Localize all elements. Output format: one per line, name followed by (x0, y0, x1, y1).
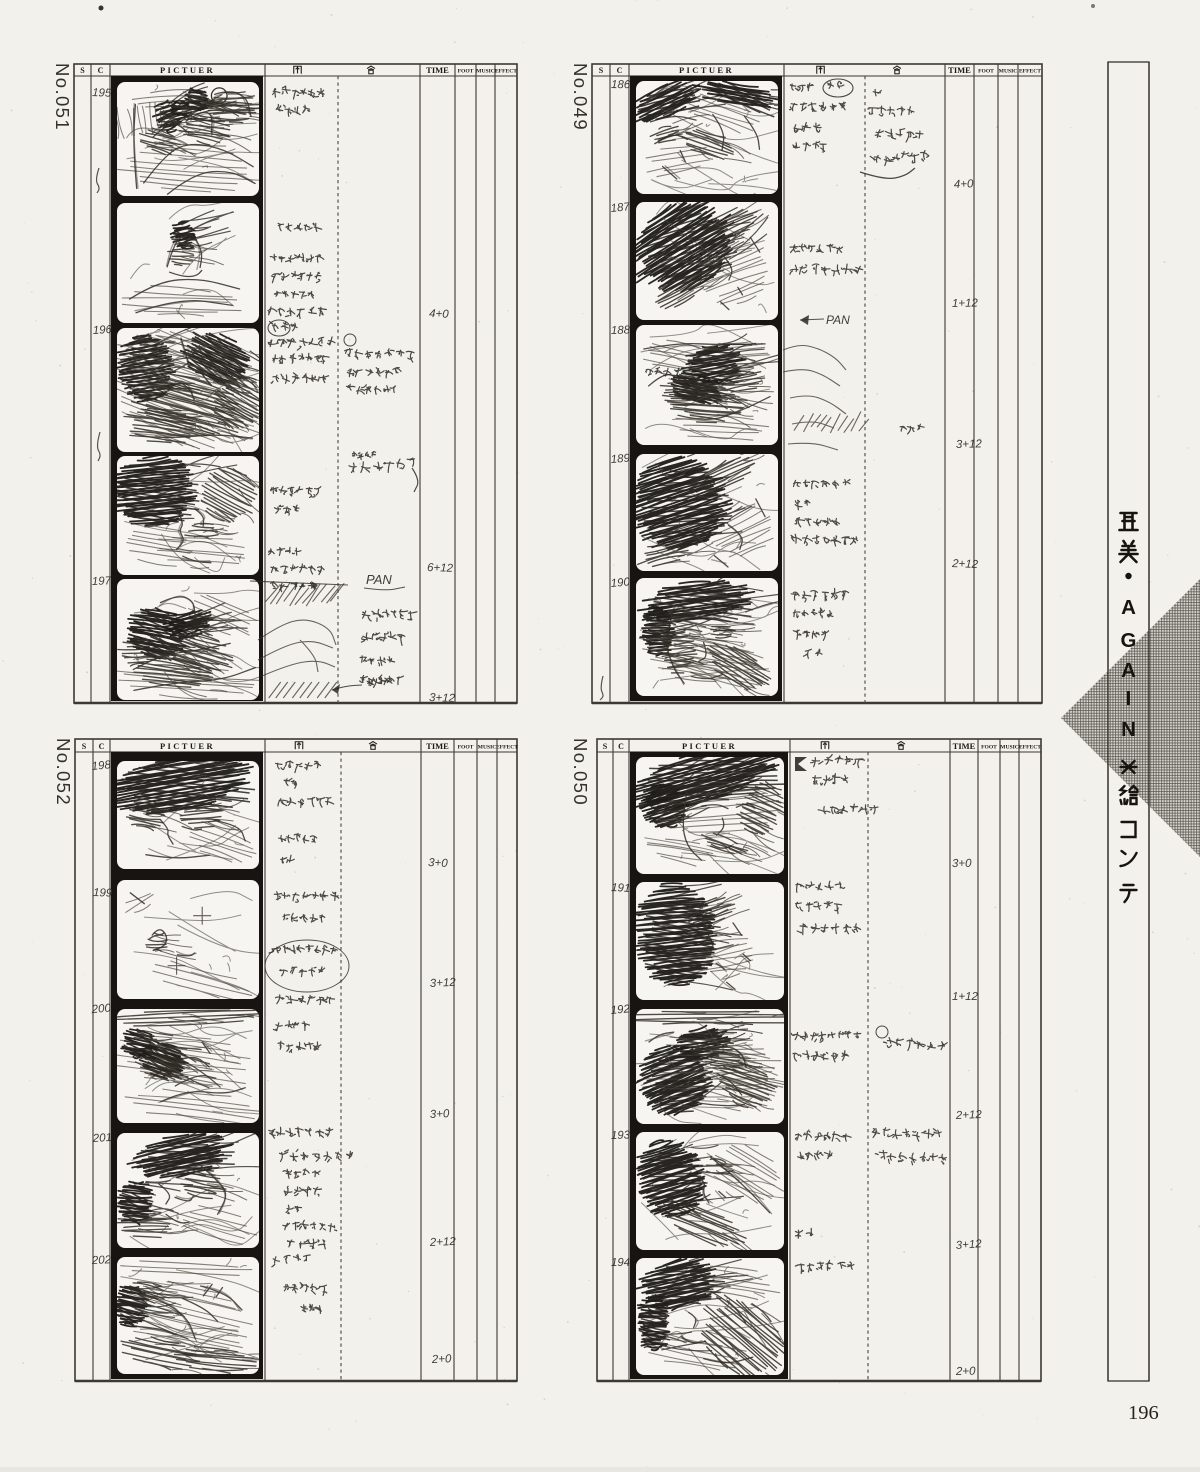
svg-text:191: 191 (611, 882, 631, 895)
svg-text:PICTUER: PICTUER (160, 65, 215, 75)
svg-text:188: 188 (611, 325, 631, 337)
svg-text:6+12: 6+12 (427, 562, 454, 575)
svg-text:No.052: No.052 (53, 738, 74, 806)
svg-text:3+12: 3+12 (956, 438, 983, 451)
svg-text:MUSIC: MUSIC (999, 69, 1018, 75)
svg-text:197: 197 (92, 575, 112, 588)
svg-text:202: 202 (91, 1254, 112, 1267)
svg-text:4+0: 4+0 (954, 178, 975, 191)
svg-text:201: 201 (91, 1132, 112, 1145)
svg-text:No.051: No.051 (52, 63, 73, 131)
svg-text:FOOT: FOOT (981, 745, 997, 751)
svg-text:PICTUER: PICTUER (679, 65, 734, 75)
svg-text:3+0: 3+0 (428, 857, 449, 870)
svg-text:187: 187 (610, 201, 631, 215)
svg-text:PICTUER: PICTUER (682, 741, 737, 751)
svg-text:No.049: No.049 (570, 63, 591, 131)
svg-text:TIME: TIME (953, 741, 976, 751)
svg-text:1+12: 1+12 (952, 991, 979, 1003)
svg-text:3+12: 3+12 (955, 1238, 982, 1252)
svg-text:S: S (599, 66, 604, 75)
svg-text:196: 196 (1128, 1402, 1159, 1424)
svg-text:3+0: 3+0 (430, 1108, 451, 1121)
svg-text:S: S (80, 66, 85, 75)
svg-text:3+12: 3+12 (430, 977, 457, 990)
svg-text:198: 198 (91, 759, 112, 773)
svg-text:189: 189 (610, 453, 631, 466)
svg-text:2+12: 2+12 (955, 1109, 983, 1122)
svg-text:EFFECT: EFFECT (1019, 745, 1041, 751)
svg-text:PAN: PAN (826, 313, 850, 327)
svg-text:N: N (1121, 718, 1136, 741)
svg-text:G: G (1121, 629, 1137, 652)
svg-text:FOOT: FOOT (978, 69, 994, 75)
svg-text:186: 186 (611, 79, 631, 91)
svg-text:FOOT: FOOT (458, 69, 474, 75)
svg-text:1+12: 1+12 (952, 297, 979, 310)
svg-text:TIME: TIME (426, 741, 449, 751)
svg-text:MUSIC: MUSIC (1000, 745, 1019, 751)
svg-text:C: C (617, 66, 623, 75)
svg-text:190: 190 (610, 576, 631, 590)
svg-text:EFFECT: EFFECT (496, 745, 518, 751)
svg-text:196: 196 (92, 324, 112, 337)
svg-text:EFFECT: EFFECT (1019, 69, 1041, 75)
svg-text:TIME: TIME (426, 65, 449, 75)
svg-text:3+0: 3+0 (952, 858, 972, 870)
svg-text:S: S (82, 742, 87, 751)
svg-text:4+0: 4+0 (429, 308, 450, 321)
svg-text:A: A (1121, 596, 1136, 619)
svg-text:C: C (618, 742, 624, 751)
svg-text:PAN: PAN (366, 572, 392, 587)
svg-text:FOOT: FOOT (458, 745, 474, 751)
svg-text:194: 194 (611, 1257, 630, 1269)
svg-text:195: 195 (92, 87, 112, 100)
svg-text:3+12: 3+12 (429, 692, 456, 705)
svg-text:PICTUER: PICTUER (160, 741, 215, 751)
svg-text:EFFECT: EFFECT (495, 69, 517, 75)
svg-text:2+12: 2+12 (429, 1236, 457, 1249)
svg-text:C: C (99, 742, 105, 751)
svg-text:193: 193 (611, 1129, 631, 1142)
svg-text:S: S (603, 742, 608, 751)
svg-text:200: 200 (90, 1002, 112, 1016)
svg-text:199: 199 (93, 887, 113, 900)
svg-text:2+0: 2+0 (431, 1353, 453, 1366)
svg-text:A: A (1121, 659, 1136, 682)
svg-text:MUSIC: MUSIC (478, 745, 497, 751)
svg-text:192: 192 (610, 1003, 631, 1017)
svg-text:2+0: 2+0 (955, 1366, 976, 1378)
svg-text:No.050: No.050 (570, 738, 591, 806)
svg-text:C: C (98, 66, 104, 75)
svg-text:TIME: TIME (948, 65, 971, 75)
svg-text:I: I (1126, 687, 1132, 710)
svg-text:MUSIC: MUSIC (476, 69, 495, 75)
svg-text:2+12: 2+12 (951, 558, 979, 571)
